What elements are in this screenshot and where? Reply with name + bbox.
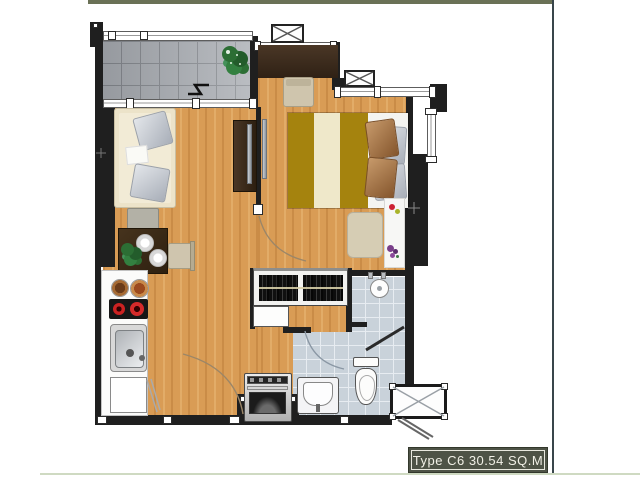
drain-pipe (398, 418, 433, 439)
floorplan-page: Type C6 30.54 SQ.M (0, 0, 640, 480)
ac-condenser-x (393, 387, 444, 416)
unit-type-plate: Type C6 30.54 SQ.M (408, 447, 548, 473)
plan-line-overlay (0, 0, 640, 480)
balcony-step-symbol (188, 85, 209, 94)
crosshair-left-wall (96, 148, 106, 158)
cabinet-door-lines (147, 379, 160, 412)
ac-ledge-x-1 (273, 26, 302, 41)
unit-type-plate-text: Type C6 30.54 SQ.M (413, 453, 543, 468)
entrance-door-swing (183, 354, 243, 414)
shower-screen (366, 327, 404, 350)
bedroom-door-swing (259, 216, 306, 261)
ac-ledge-x-2 (346, 72, 373, 85)
bathroom-door-swing (305, 331, 344, 369)
crosshair-right-column (408, 202, 420, 214)
